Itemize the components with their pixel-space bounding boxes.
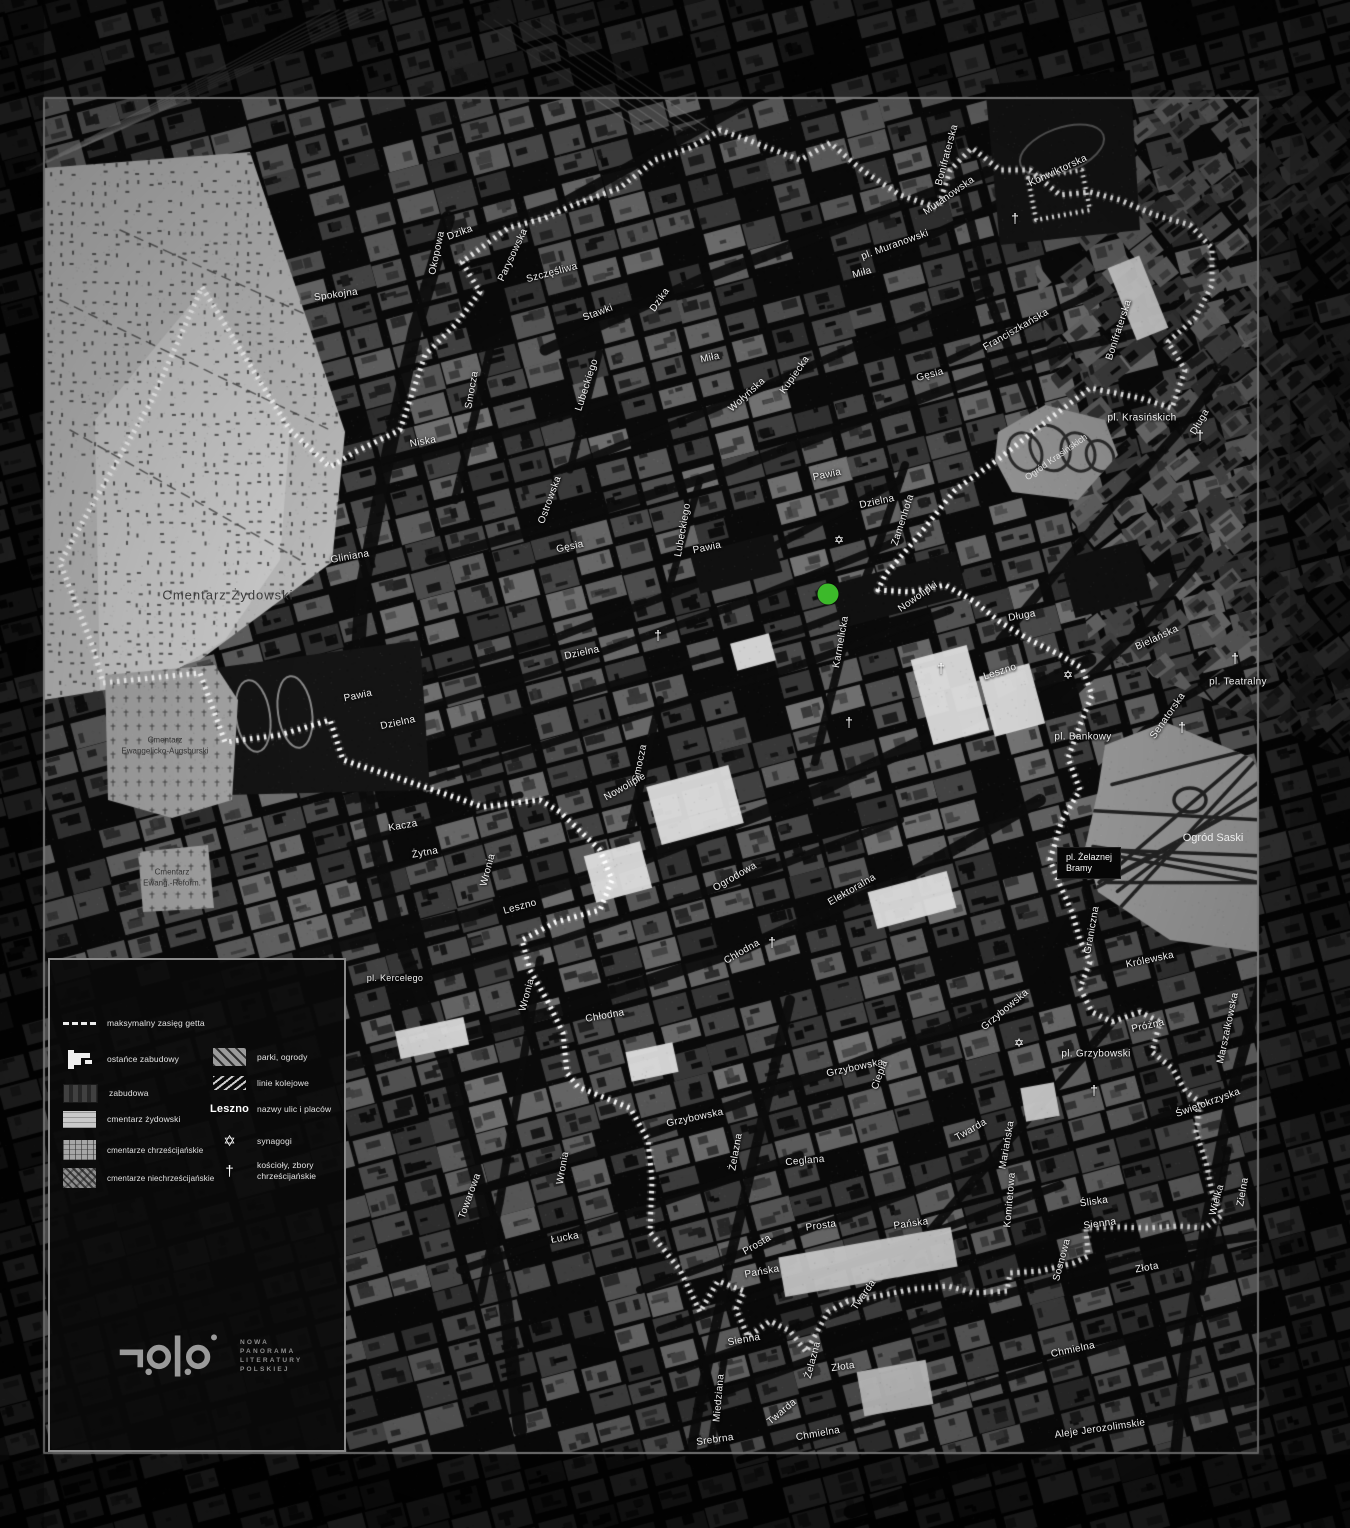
selected-location-marker[interactable] xyxy=(818,584,839,605)
legend-item-railways: linie kolejowe xyxy=(213,1076,309,1090)
warsaw-ghetto-map: DzikaOkopowaSpokojnaParysowskaSzczęśliwa… xyxy=(0,0,1350,1528)
cross-icon: † xyxy=(213,1163,246,1180)
buildings-swatch-icon xyxy=(63,1084,98,1103)
railways-swatch-icon xyxy=(213,1076,246,1090)
star-of-david-icon: ✡ xyxy=(213,1132,246,1150)
parks-swatch-icon xyxy=(213,1048,246,1066)
legend-item-street-names: Leszno nazwy ulic i placów xyxy=(213,1103,331,1115)
legend-item-parks: parki, ogrody xyxy=(213,1048,307,1066)
legend-item-churches: † kościoły, zbory chrześcijańskie xyxy=(213,1160,349,1182)
legend-item-christian-cemeteries: cmentarze chrześcijańskie xyxy=(63,1140,203,1160)
legend-item-non-christian-cemeteries: cmentarze niechrześcijańskie xyxy=(63,1168,214,1188)
legend-item-ghetto-extent: maksymalny zasięg getta xyxy=(63,1018,205,1029)
legend-item-buildings: zabudowa xyxy=(63,1084,149,1103)
legend-item-synagogues: ✡ synagogi xyxy=(213,1132,292,1150)
remnant-buildings-swatch-icon xyxy=(63,1046,96,1072)
ghetto-extent-swatch-icon xyxy=(63,1022,96,1025)
nplp-logo-icon xyxy=(116,1328,228,1384)
non-christian-cemeteries-swatch-icon xyxy=(63,1168,96,1188)
legend-item-jewish-cemetery: cmentarz żydowski xyxy=(63,1111,181,1128)
legend-panel: maksymalny zasięg getta ostańce zabudowy… xyxy=(48,958,346,1452)
logo-wordmark: NOWA PANORAMA LITERATURY POLSKIEJ xyxy=(240,1338,302,1374)
street-name-sample: Leszno xyxy=(213,1103,246,1115)
jewish-cemetery-swatch-icon xyxy=(63,1111,96,1128)
legend-item-remnant-buildings: ostańce zabudowy xyxy=(63,1046,179,1072)
nplp-logo: NOWA PANORAMA LITERATURY POLSKIEJ xyxy=(116,1328,302,1384)
christian-cemeteries-swatch-icon xyxy=(63,1140,96,1160)
